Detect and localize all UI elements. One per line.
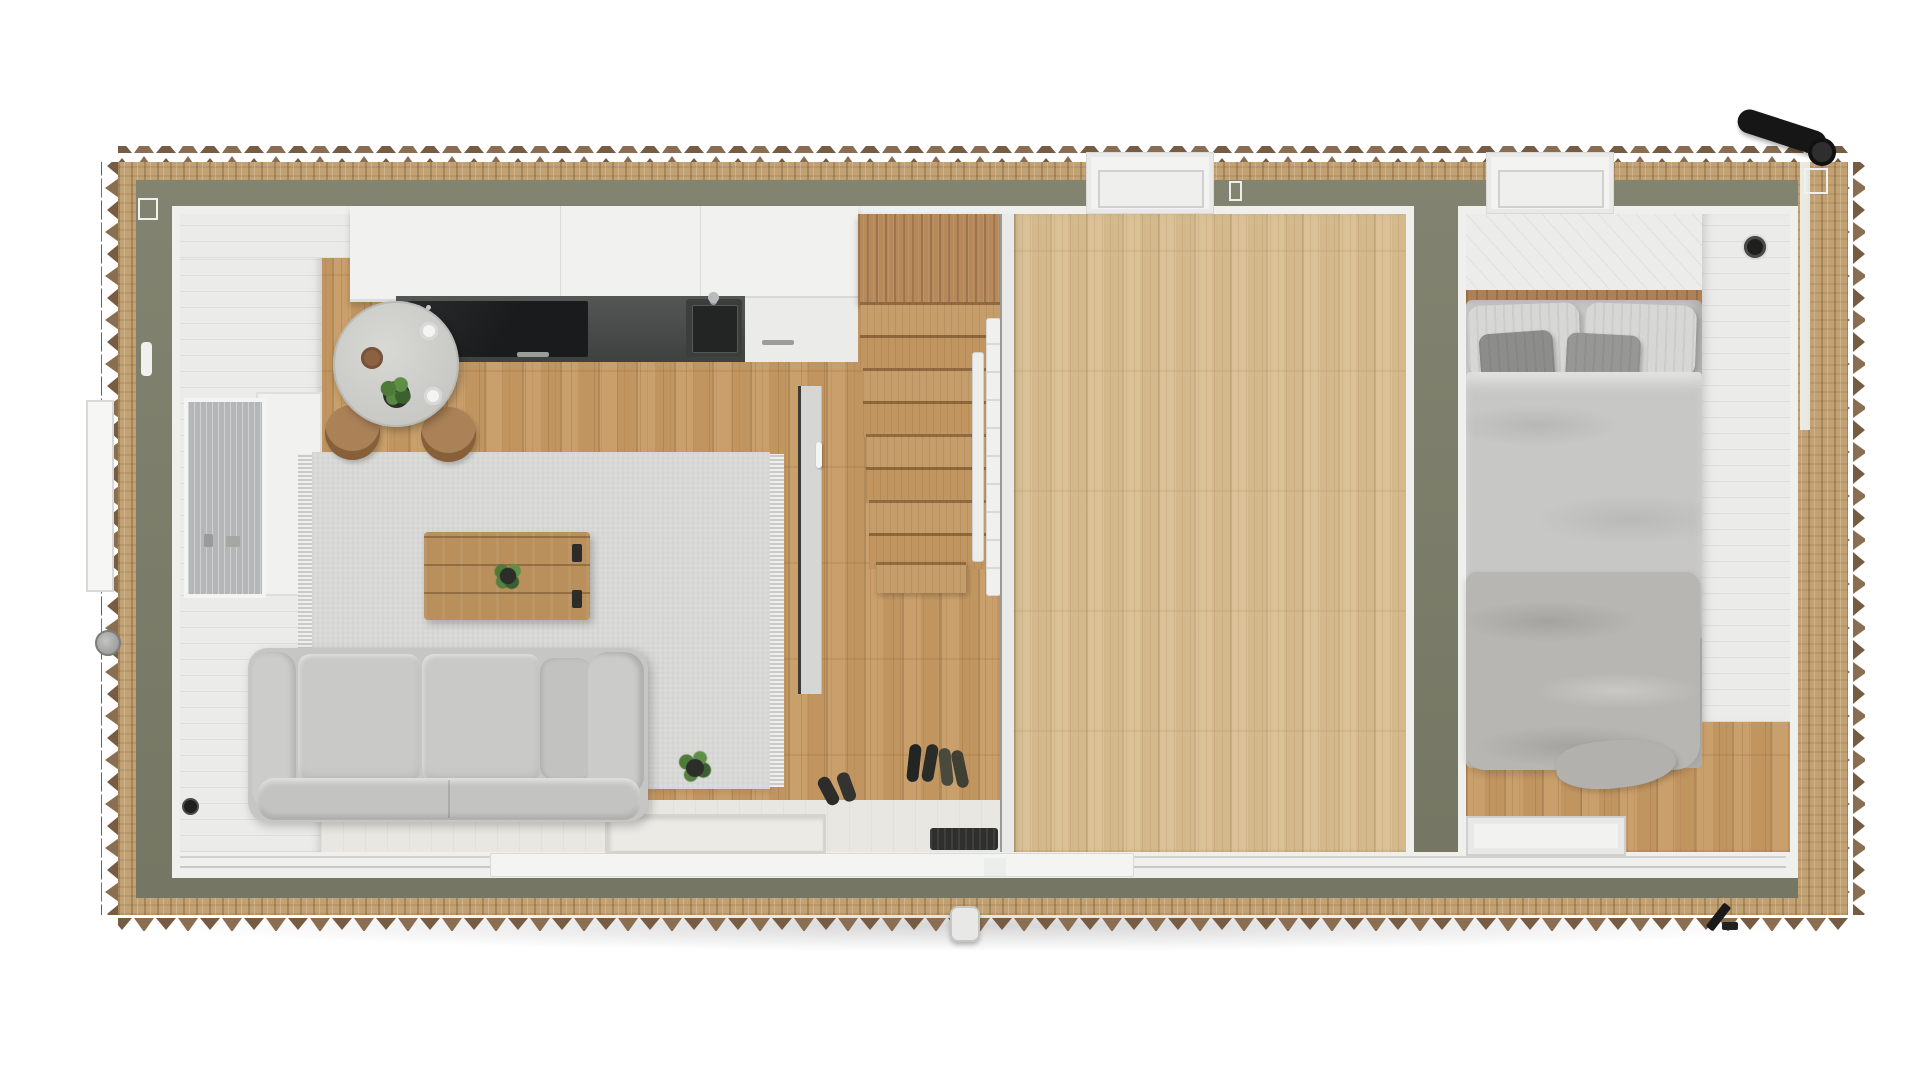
rug-fringe-right — [770, 454, 784, 787]
wall-marker — [138, 198, 158, 220]
left-window-glass — [184, 398, 266, 598]
boot-tray — [930, 828, 998, 850]
bedroom-glass-threshold — [1466, 816, 1626, 856]
sofa-arm-pillow-right — [540, 658, 592, 780]
loft-bedroom-wall-trim-2 — [1458, 214, 1466, 852]
floor-plant — [674, 746, 716, 786]
wall-marker-2 — [141, 342, 152, 376]
wall-marker-3 — [1229, 181, 1242, 201]
cabinet-handle — [517, 352, 549, 357]
kitchen-sink-basin — [692, 305, 738, 353]
coffee-cup-2 — [424, 387, 442, 405]
crate-plant — [489, 558, 527, 594]
partition-door-handle — [816, 442, 822, 468]
left-door-knob — [95, 630, 121, 656]
wall-junction-notch — [984, 858, 1006, 876]
stair-bottom-tread — [876, 562, 966, 593]
loft-rail — [972, 352, 984, 562]
cabinet-seam-2 — [700, 206, 701, 302]
table-tray — [361, 347, 383, 369]
bed-blanket — [1466, 572, 1700, 770]
loft-bedroom-wall — [1414, 180, 1458, 852]
crate-handle-slot-2 — [572, 590, 582, 608]
table-plant-foliage — [377, 375, 415, 409]
bedroom-right-wall-face — [1702, 214, 1790, 722]
window-crank-handle-2 — [226, 536, 240, 547]
entry-recessed-tray — [605, 814, 826, 854]
loft-rail-2 — [986, 318, 1001, 596]
sofa-seat-cushion — [298, 654, 420, 782]
crate-handle-slot — [572, 544, 582, 562]
right-corner-trim — [1800, 162, 1810, 430]
sliding-door-panel — [490, 853, 1134, 877]
floorplan-stage — [0, 0, 1920, 1080]
bottom-hinge-foot — [1722, 922, 1738, 930]
left-window-exterior-frame — [86, 400, 114, 592]
window-crank-handle — [204, 534, 213, 547]
exterior-door-handle — [950, 906, 980, 942]
loft-deck-panel — [1014, 214, 1406, 852]
partition-wall-edge — [798, 386, 822, 694]
sofa-seat-cushion-2 — [422, 654, 540, 782]
wall-vent — [1744, 236, 1766, 258]
top-wall-inner-face — [180, 214, 352, 258]
sofa-back-seam — [448, 780, 450, 818]
top-window-inner — [1098, 170, 1204, 208]
faucet — [708, 292, 719, 303]
kitchen-base-cabinet-right — [745, 296, 858, 362]
loft-bedroom-wall-trim — [1406, 214, 1414, 852]
cabinet-seam — [560, 206, 561, 302]
chimney-cap — [1808, 138, 1836, 166]
kitchen-upper-cabinets — [350, 206, 858, 302]
door-stop-dot — [184, 800, 197, 813]
sofa-armrest-right — [588, 652, 644, 796]
cabinet-handle-2 — [762, 340, 794, 345]
coffee-cup — [420, 322, 438, 340]
bedroom-top-window-inner — [1498, 170, 1604, 208]
stair-upper-panel — [858, 214, 1008, 302]
